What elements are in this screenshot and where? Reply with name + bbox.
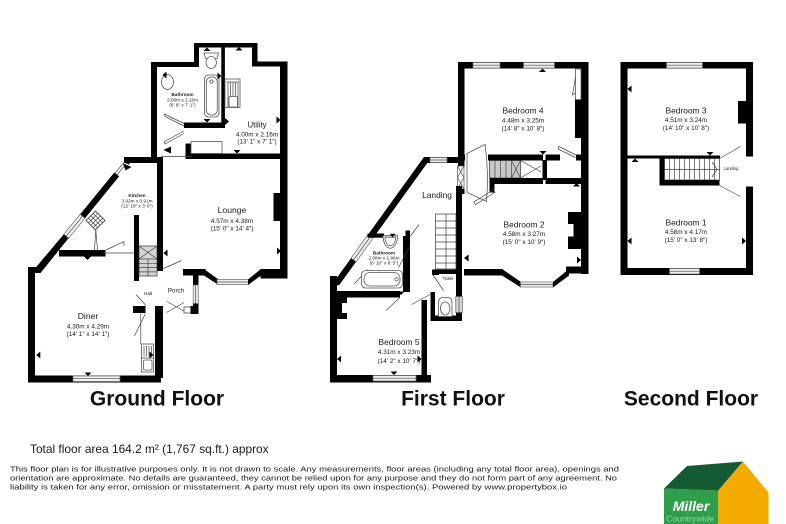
- svg-text:(15' 0" x 10' 9"): (15' 0" x 10' 9"): [503, 239, 546, 246]
- svg-text:Diner: Diner: [78, 311, 99, 321]
- svg-text:(13' 1" x 7' 1"): (13' 1" x 7' 1"): [237, 139, 276, 146]
- svg-text:(14' 8" x 10' 8"): (14' 8" x 10' 8"): [502, 126, 545, 133]
- svg-text:(6' 10" x 6' 5"): (6' 10" x 6' 5"): [370, 261, 399, 266]
- svg-text:Total floor area 164.2 m² (1,7: Total floor area 164.2 m² (1,767 sq.ft.)…: [30, 442, 269, 456]
- svg-text:(12' 10" x 3' 0"): (12' 10" x 3' 0"): [121, 204, 153, 209]
- svg-text:This floor plan is for illustr: This floor plan is for illustrative purp…: [10, 467, 619, 474]
- svg-text:Kitchen: Kitchen: [128, 193, 145, 198]
- svg-text:Lounge: Lounge: [218, 205, 247, 215]
- svg-text:Toilet: Toilet: [443, 276, 455, 281]
- svg-text:Utility: Utility: [247, 121, 266, 130]
- svg-text:Bedroom 1: Bedroom 1: [666, 218, 707, 228]
- svg-text:(15' 0" x 14' 4"): (15' 0" x 14' 4"): [211, 226, 254, 233]
- svg-text:4.57m x 4.38m: 4.57m x 4.38m: [211, 218, 253, 225]
- svg-text:4.30m x 4.29m: 4.30m x 4.29m: [67, 324, 109, 331]
- svg-text:(14' 2" x 10' 7"): (14' 2" x 10' 7"): [378, 358, 421, 365]
- svg-text:Bedroom 2: Bedroom 2: [504, 220, 545, 230]
- svg-text:Hall: Hall: [144, 291, 152, 296]
- svg-text:(14' 10" x 10' 8"): (14' 10" x 10' 8"): [663, 125, 709, 132]
- svg-text:liability is taken for any err: liability is taken for any error, omissi…: [10, 485, 567, 492]
- svg-text:Bedroom 4: Bedroom 4: [503, 106, 544, 116]
- svg-text:(14' 1" x 14' 1"): (14' 1" x 14' 1"): [67, 331, 110, 338]
- svg-text:4.58m x 3.27m: 4.58m x 3.27m: [503, 231, 545, 238]
- svg-text:Bedroom 5: Bedroom 5: [379, 337, 420, 347]
- svg-text:(6' 9" x 7' 1"): (6' 9" x 7' 1"): [169, 103, 196, 108]
- svg-text:Ground Floor: Ground Floor: [90, 388, 224, 411]
- svg-text:Miller: Miller: [673, 498, 711, 514]
- svg-text:4.58m x 4.17m: 4.58m x 4.17m: [665, 229, 707, 236]
- svg-text:Bathroom: Bathroom: [171, 92, 193, 97]
- svg-text:Porch: Porch: [168, 288, 185, 295]
- svg-text:4.48m x 3.25m: 4.48m x 3.25m: [502, 118, 544, 125]
- svg-text:Countrywide: Countrywide: [666, 514, 714, 524]
- svg-text:orientation are approximate. N: orientation are approximate. No details …: [10, 476, 617, 483]
- svg-text:4.51m x 3.24m: 4.51m x 3.24m: [665, 117, 707, 124]
- svg-text:4.31m x 3.23m: 4.31m x 3.23m: [378, 349, 420, 356]
- svg-text:Second Floor: Second Floor: [624, 388, 758, 411]
- svg-text:Landing: Landing: [422, 190, 452, 200]
- svg-text:Landing: Landing: [724, 166, 740, 171]
- svg-text:Bedroom 3: Bedroom 3: [666, 106, 707, 116]
- svg-text:4.00m x 2.16m: 4.00m x 2.16m: [236, 132, 278, 139]
- svg-text:(15' 0" x 13' 8"): (15' 0" x 13' 8"): [665, 237, 708, 244]
- svg-text:First Floor: First Floor: [401, 388, 505, 411]
